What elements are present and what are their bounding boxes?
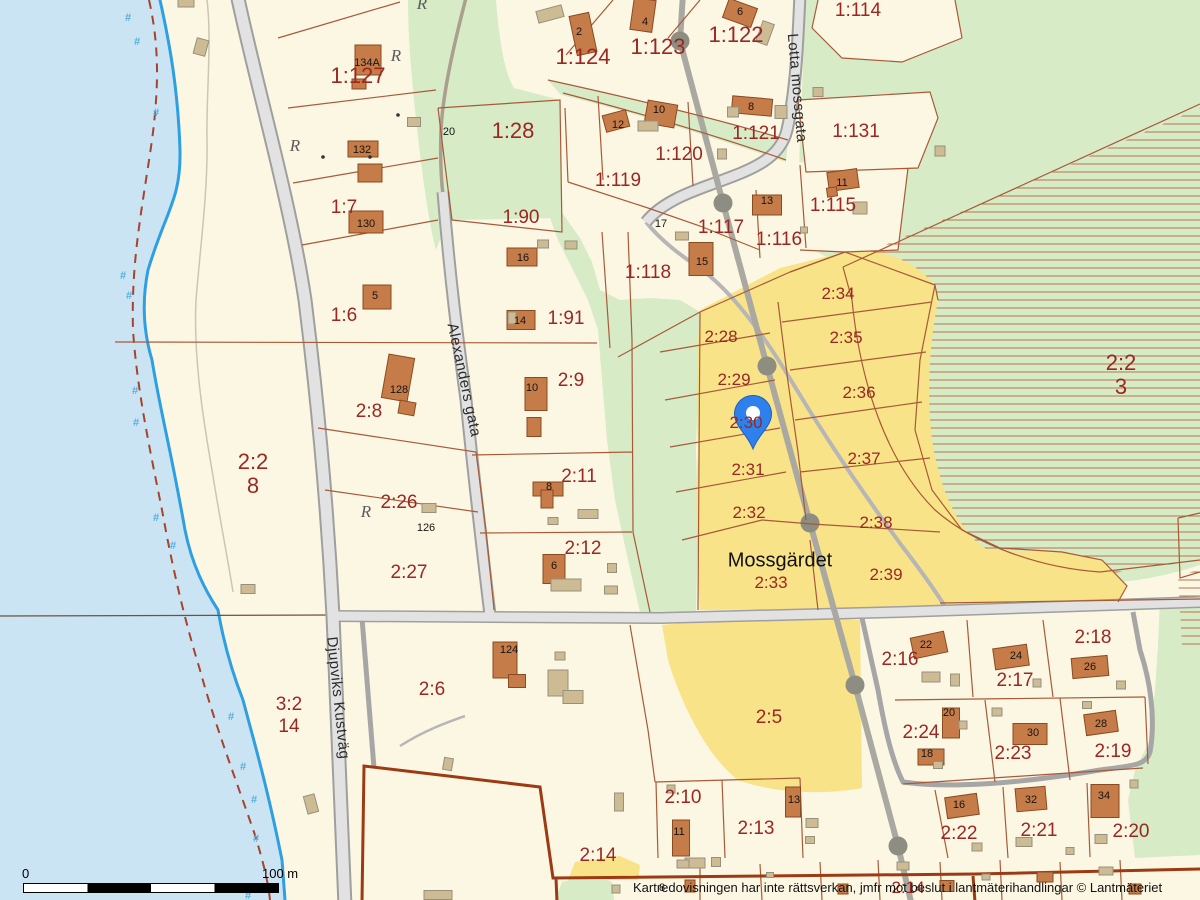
outbuilding — [241, 585, 255, 594]
outbuilding — [1033, 679, 1041, 687]
power-pole-icon — [758, 357, 777, 376]
power-pole-icon — [714, 194, 733, 213]
scale-bar — [23, 883, 279, 893]
outbuilding — [934, 762, 943, 769]
outbuilding — [813, 88, 823, 97]
power-pole-icon — [846, 676, 865, 695]
map-graphics — [0, 0, 1200, 900]
map-canvas[interactable]: Mossgärdet 1:1271:71:62:82:262:272:283:2… — [0, 0, 1200, 900]
scale-end-label: 100 m — [262, 866, 298, 881]
boundary-marker-dot — [396, 113, 400, 117]
outbuilding — [767, 873, 774, 878]
outbuilding — [548, 518, 558, 525]
outbuilding — [897, 862, 909, 870]
building — [943, 708, 960, 738]
outbuilding — [555, 652, 565, 660]
outbuilding — [1130, 780, 1138, 788]
outbuilding — [578, 510, 598, 519]
building — [1084, 710, 1119, 735]
outbuilding — [1099, 867, 1113, 875]
building — [689, 243, 713, 276]
outbuilding — [853, 202, 867, 214]
building — [509, 675, 526, 688]
boundary-marker-dot — [368, 155, 372, 159]
power-pole-icon — [889, 837, 908, 856]
outbuilding — [951, 674, 960, 686]
building — [507, 248, 537, 266]
outbuilding — [801, 227, 808, 233]
outbuilding — [677, 860, 689, 868]
outbuilding — [408, 118, 421, 127]
building — [753, 195, 782, 215]
outbuilding — [615, 793, 624, 811]
building — [352, 79, 366, 89]
outbuilding — [806, 837, 815, 844]
outbuilding — [1016, 838, 1032, 847]
outbuilding — [676, 232, 689, 240]
power-pole-icon — [671, 32, 690, 51]
outbuilding — [992, 708, 1002, 716]
outbuilding — [972, 843, 982, 851]
outbuilding — [638, 121, 658, 131]
building — [363, 285, 391, 309]
building — [673, 820, 690, 856]
outbuilding — [424, 891, 452, 900]
building — [493, 642, 517, 678]
building — [527, 418, 541, 437]
building — [349, 211, 383, 233]
building — [348, 141, 378, 157]
outbuilding — [959, 721, 967, 729]
outbuilding — [1066, 848, 1074, 855]
building — [630, 0, 656, 32]
outbuilding — [608, 564, 617, 573]
outbuilding — [612, 885, 620, 893]
outbuilding — [922, 672, 940, 682]
building — [398, 400, 416, 416]
outbuilding — [1117, 681, 1126, 689]
outbuilding — [551, 579, 581, 591]
building — [826, 187, 837, 197]
outbuilding — [935, 146, 945, 156]
outbuilding — [422, 504, 436, 513]
outbuilding — [563, 691, 583, 704]
outbuilding — [775, 106, 787, 119]
boundary-marker-dot — [321, 155, 325, 159]
outbuilding — [1083, 702, 1092, 709]
outbuilding — [443, 757, 454, 770]
building — [358, 164, 382, 182]
outbuilding — [806, 819, 818, 828]
building — [1091, 785, 1119, 818]
outbuilding — [1095, 835, 1107, 844]
building — [525, 378, 547, 411]
building — [786, 787, 801, 817]
outbuilding — [605, 586, 618, 594]
outbuilding — [728, 107, 739, 117]
scale-start-label: 0 — [22, 866, 29, 881]
building — [1013, 724, 1047, 745]
outbuilding — [508, 312, 516, 324]
outbuilding — [178, 0, 194, 7]
building — [993, 644, 1030, 670]
building — [1015, 786, 1047, 812]
building — [355, 45, 381, 75]
outbuilding — [712, 858, 721, 867]
building — [541, 490, 553, 508]
attribution-text: Kartredovisningen har inte rättsverkan, … — [633, 880, 1162, 895]
outbuilding — [667, 785, 675, 793]
outbuilding — [565, 241, 577, 249]
outbuilding — [718, 149, 727, 159]
outbuilding — [538, 240, 549, 248]
building — [1071, 655, 1109, 678]
building — [945, 793, 980, 818]
